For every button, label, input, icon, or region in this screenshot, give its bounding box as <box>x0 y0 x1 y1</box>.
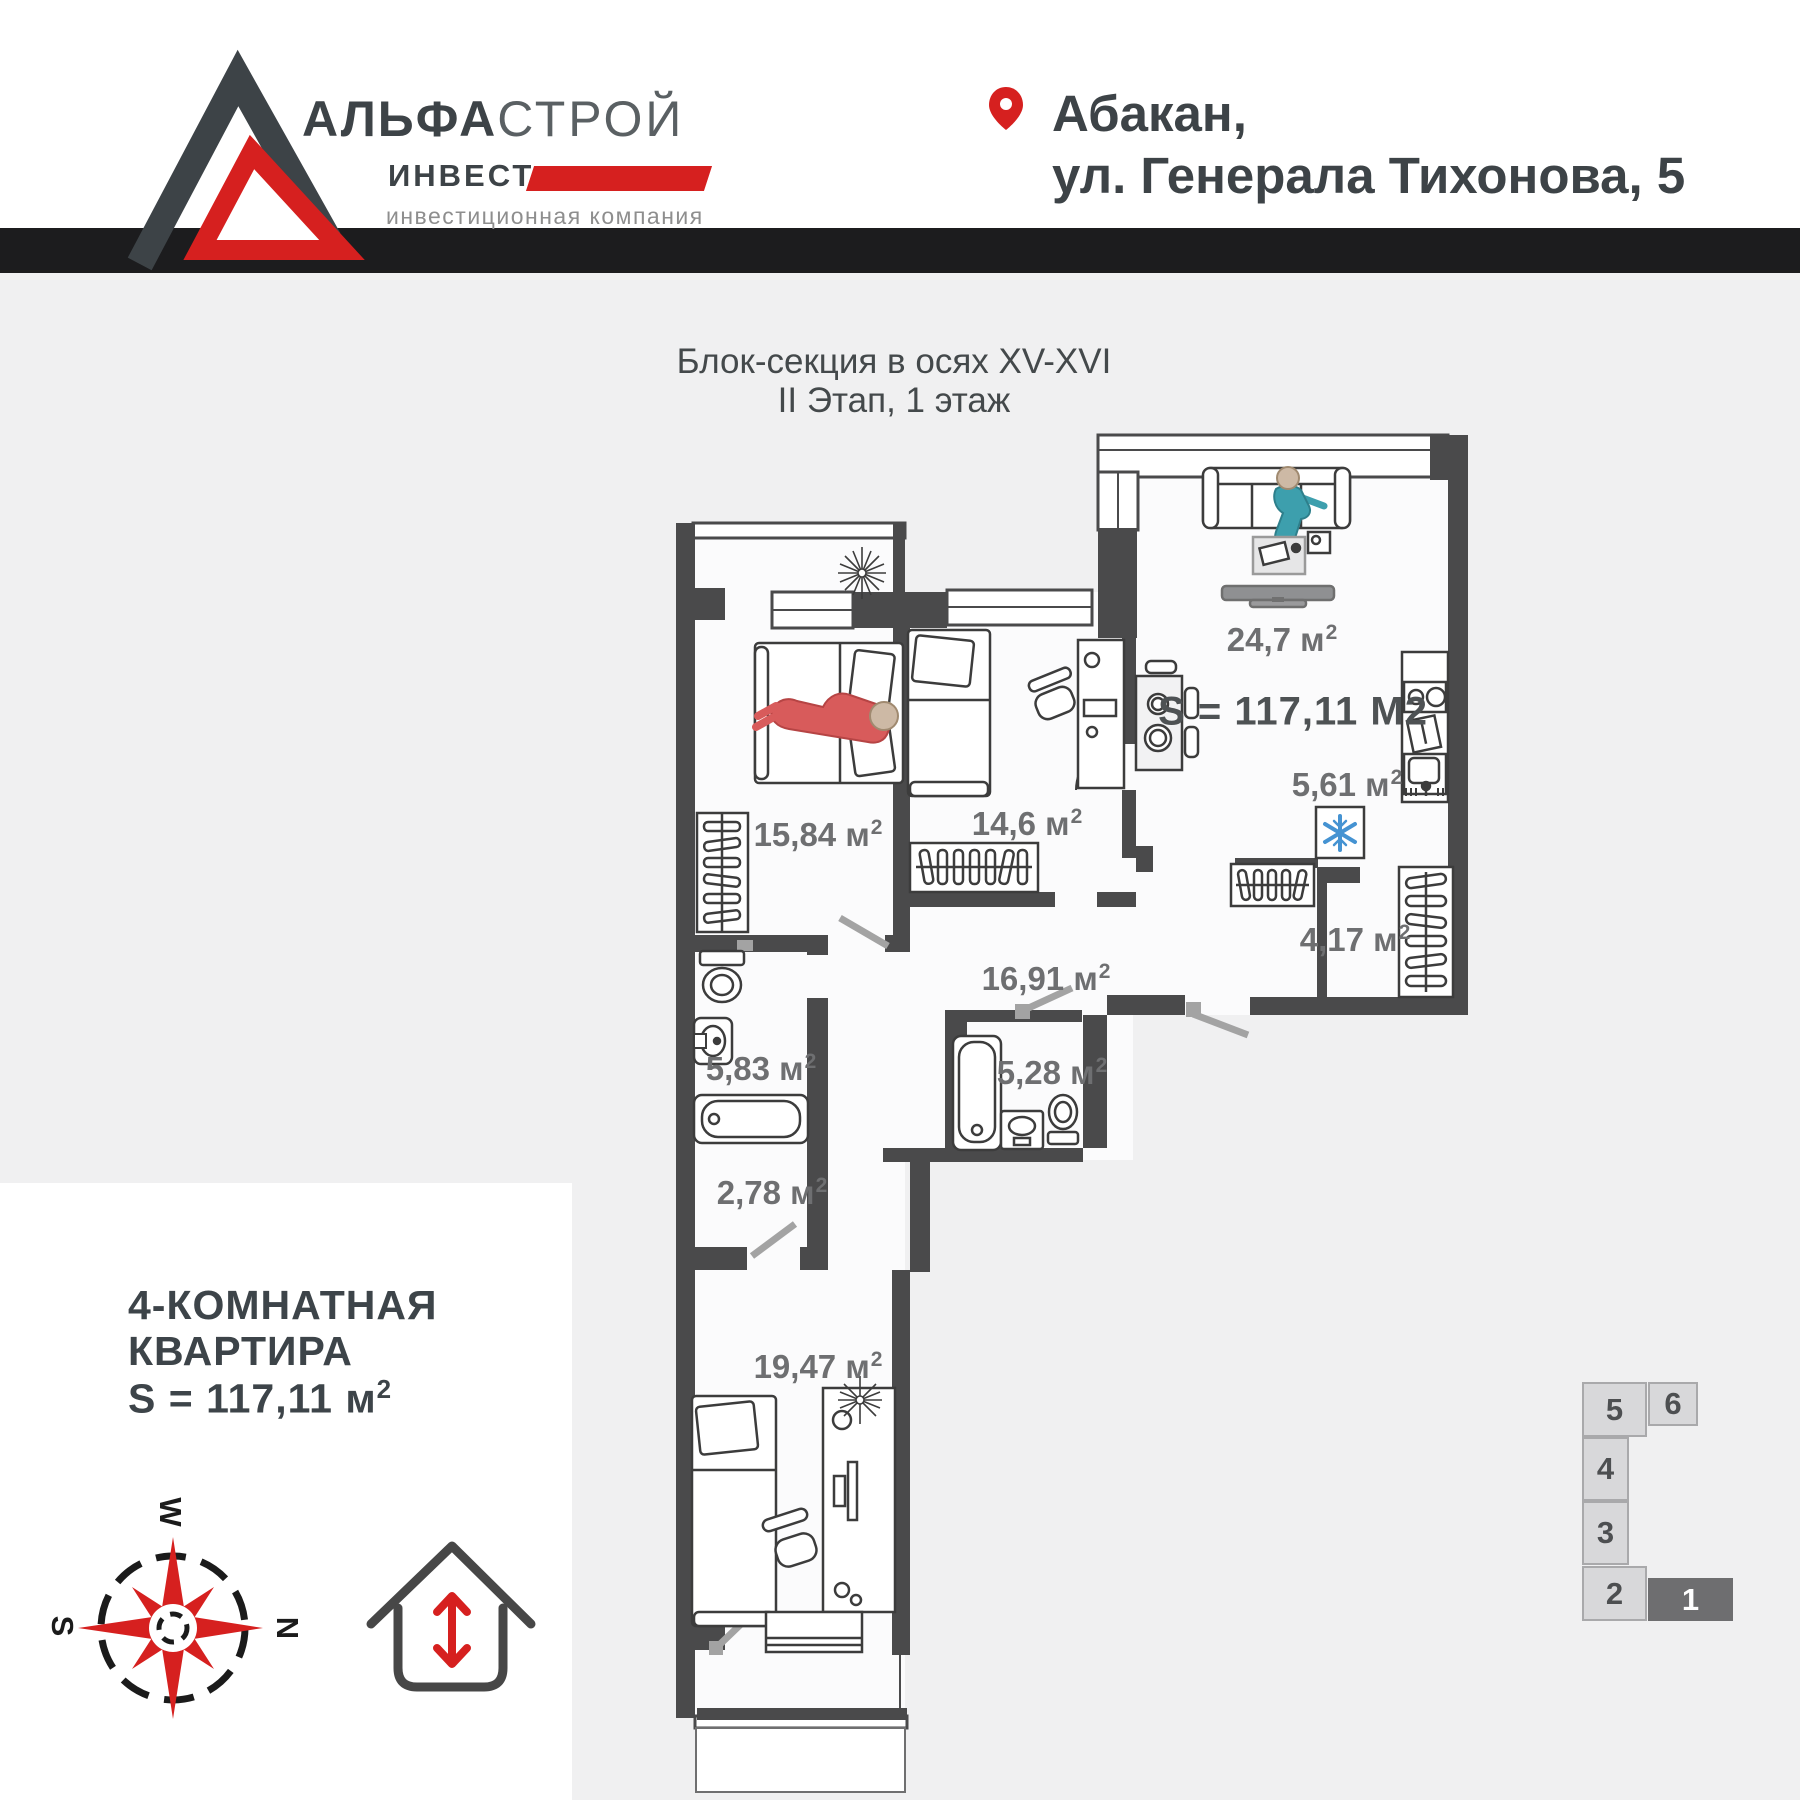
label-closet: 2,78 м2 <box>717 1174 828 1212</box>
single-bed-bedroom-3 <box>692 1396 776 1626</box>
window-mullions <box>772 450 1448 1716</box>
fridge <box>1316 807 1364 858</box>
logo-name-bold: АЛЬФА <box>302 91 497 147</box>
logo-name-light: СТРОЙ <box>497 91 684 147</box>
tv <box>1222 586 1334 607</box>
site-cell-4: 4 <box>1582 1437 1629 1501</box>
chair-bedroom-2 <box>1027 666 1077 722</box>
label-wardrobe: 4,17 м2 <box>1300 921 1411 959</box>
apartment-area: S = 117,11 м2 <box>128 1374 392 1423</box>
bathtub-bathroom-1 <box>694 1095 808 1143</box>
poster-page: АЛЬФАСТРОЙ ИНВЕСТ инвестиционная компани… <box>0 0 1800 1800</box>
floor-plan <box>676 435 1468 1792</box>
logo-tagline: инвестиционная компания <box>386 203 704 230</box>
radiator-bedroom-2 <box>910 843 1038 892</box>
divider-bar <box>0 228 1800 273</box>
site-cell-6: 6 <box>1648 1382 1698 1426</box>
label-bathroom-1: 5,83 м2 <box>706 1050 817 1088</box>
logo-red-stripe <box>526 166 712 191</box>
logo-invest-label: ИНВЕСТ <box>388 158 534 194</box>
compass-letter-n: N <box>269 1617 305 1639</box>
label-bedroom-1: 15,84 м2 <box>754 816 883 854</box>
double-bed <box>755 643 903 783</box>
toilet-bathroom-2 <box>1048 1095 1078 1144</box>
door-arc-bedroom-2 <box>1076 744 1122 790</box>
apartment-info-card <box>0 1183 572 1800</box>
label-bedroom-3: 19,47 м2 <box>754 1348 883 1386</box>
person-lying-icon <box>756 694 898 743</box>
desk-bedroom-2 <box>1078 640 1124 788</box>
apartment-type-line1: 4-КОМНАТНАЯ <box>128 1282 437 1329</box>
toilet-bathroom-1 <box>700 951 744 1002</box>
label-bedroom-2: 14,6 м2 <box>972 805 1083 843</box>
label-living-room: 24,7 м2 <box>1227 621 1338 659</box>
cabinet-bathroom-2 <box>1001 1111 1043 1149</box>
bathtub-bathroom-2 <box>953 1036 1001 1150</box>
label-kitchen: 5,61 м2 <box>1292 766 1403 804</box>
desk-bedroom-3 <box>823 1388 895 1612</box>
label-corridor: 16,91 м2 <box>982 960 1111 998</box>
sofa <box>1203 468 1350 528</box>
entry-cabinet <box>1231 864 1314 906</box>
compass-letter-s: S <box>44 1616 80 1637</box>
site-cell-1-active: 1 <box>1648 1578 1733 1621</box>
plant-icon <box>838 547 886 599</box>
site-cell-3: 3 <box>1582 1501 1629 1565</box>
wardrobe-bedroom-1 <box>697 813 748 932</box>
site-cell-2: 2 <box>1582 1566 1647 1621</box>
person-sitting-icon <box>1274 467 1324 547</box>
single-bed-bedroom-2 <box>908 630 990 796</box>
address-street: ул. Генерала Тихонова, 5 <box>1052 146 1685 205</box>
compass-letter-w: W <box>152 1497 188 1526</box>
apartment-type-line2: КВАРТИРА <box>128 1328 353 1375</box>
label-bathroom-2: 5,28 м2 <box>997 1054 1108 1092</box>
snowflake-icon <box>1325 816 1355 850</box>
label-total-area: S = 117,11 М2 <box>1158 690 1428 735</box>
chair-bedroom-3 <box>761 1507 819 1569</box>
side-table <box>1308 532 1330 553</box>
site-cell-5: 5 <box>1582 1382 1647 1437</box>
plan-title-line1: Блок-секция в осях XV-XVI <box>677 342 1112 382</box>
logo-wordmark: АЛЬФАСТРОЙ <box>302 90 684 148</box>
address-city: Абакан, <box>1052 84 1247 143</box>
doors <box>714 918 1248 1650</box>
coffee-table <box>1253 537 1305 574</box>
door-hinges <box>709 940 1201 1655</box>
dresser-bedroom-3 <box>766 1612 862 1652</box>
plan-title-line2: II Этап, 1 этаж <box>778 381 1011 421</box>
